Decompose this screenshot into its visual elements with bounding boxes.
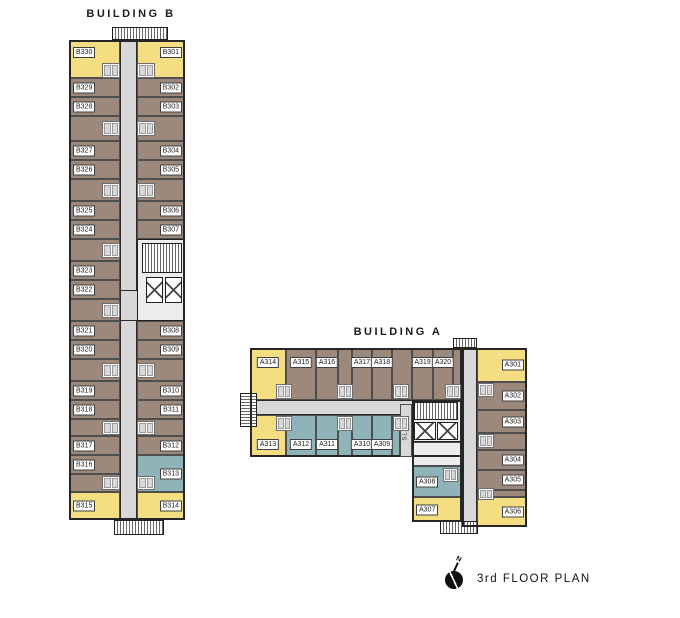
elevator-icon bbox=[414, 422, 436, 440]
unit-A303: A303 bbox=[477, 410, 527, 433]
bathroom-pod bbox=[102, 243, 120, 258]
building-a: A314A315A316A317A318A319A320A313A312A311… bbox=[240, 345, 530, 560]
bathroom-pod bbox=[445, 384, 461, 399]
stair-bump bbox=[240, 393, 257, 427]
bathroom-pod bbox=[137, 363, 155, 378]
unit-B324: B324 bbox=[69, 220, 120, 239]
bathroom-pod bbox=[102, 63, 120, 78]
unit-label-B316: B316 bbox=[73, 459, 95, 470]
bathroom-pod bbox=[393, 416, 409, 431]
unit-label-A317: A317 bbox=[351, 357, 373, 368]
unit-label-B301: B301 bbox=[160, 47, 182, 58]
unit-label-B329: B329 bbox=[73, 82, 95, 93]
elevator-icon bbox=[437, 422, 458, 440]
stair bbox=[142, 243, 182, 273]
bathroom-pod bbox=[393, 384, 409, 399]
unit-A307: A307 bbox=[412, 497, 462, 522]
unit-B317: B317 bbox=[69, 436, 120, 455]
bathroom-pod bbox=[102, 476, 120, 490]
unit-B305: B305 bbox=[137, 160, 185, 179]
plan-legend: N 3rd FLOOR PLAN bbox=[440, 558, 640, 598]
unit-label-B321: B321 bbox=[73, 325, 95, 336]
unit-B306: B306 bbox=[137, 201, 185, 220]
unit-label-A303: A303 bbox=[502, 416, 524, 427]
unit-label-A310: A310 bbox=[351, 439, 373, 450]
unit-A306: A306 bbox=[477, 497, 527, 527]
corridor bbox=[462, 348, 477, 530]
unit-label-A309: A309 bbox=[371, 439, 393, 450]
unit-B308: B308 bbox=[137, 321, 185, 340]
unit-label-A312: A312 bbox=[290, 439, 312, 450]
building-title: BUILDING B bbox=[86, 8, 175, 20]
unit-label-A316: A316 bbox=[316, 357, 338, 368]
unit-label-A314: A314 bbox=[257, 357, 279, 368]
unit-A309: A309 bbox=[372, 415, 392, 457]
unit-label-B319: B319 bbox=[73, 385, 95, 396]
unit-A317: A317 bbox=[352, 348, 372, 400]
unit-B325: B325 bbox=[69, 201, 120, 220]
unit-label-B308: B308 bbox=[160, 325, 182, 336]
bathroom-pod bbox=[337, 384, 353, 399]
plan-title: 3rd FLOOR PLAN bbox=[477, 573, 591, 585]
unit-B311: B311 bbox=[137, 400, 185, 419]
unit-label-B330: B330 bbox=[73, 47, 95, 58]
unit-B310: B310 bbox=[137, 381, 185, 400]
unit-B302: B302 bbox=[137, 78, 185, 97]
north-arrow-icon: N bbox=[440, 558, 474, 594]
unit-label-B317: B317 bbox=[73, 440, 95, 451]
unit-label-A306: A306 bbox=[502, 507, 524, 518]
unit-label-A315: A315 bbox=[290, 357, 312, 368]
unit-label-B318: B318 bbox=[73, 404, 95, 415]
bathroom-pod bbox=[137, 63, 155, 78]
service-area bbox=[412, 442, 462, 466]
building-title: BUILDING A bbox=[354, 326, 443, 338]
unit-label-B312: B312 bbox=[160, 440, 182, 451]
unit-B309: B309 bbox=[137, 340, 185, 359]
unit-label-B302: B302 bbox=[160, 82, 182, 93]
unit-A304: A304 bbox=[477, 450, 527, 470]
unit-label-B309: B309 bbox=[160, 344, 182, 355]
unit-A310: A310 bbox=[352, 415, 372, 457]
unit-B312: B312 bbox=[137, 436, 185, 455]
elevator-icon bbox=[146, 277, 163, 303]
bathroom-pod bbox=[337, 416, 353, 431]
unit-label-B327: B327 bbox=[73, 145, 95, 156]
bathroom-pod bbox=[478, 383, 494, 397]
bathroom-pod bbox=[478, 488, 494, 500]
unit-label-B328: B328 bbox=[73, 101, 95, 112]
unit-A301: A301 bbox=[477, 348, 527, 382]
unit-A311: A311 bbox=[316, 415, 338, 457]
bathroom-pod bbox=[102, 183, 120, 198]
elevator-icon bbox=[165, 277, 182, 303]
unit-label-B326: B326 bbox=[73, 164, 95, 175]
unit-label-B311: B311 bbox=[160, 404, 182, 415]
bathroom-pod bbox=[478, 434, 494, 448]
unit-label-B313: B313 bbox=[160, 468, 182, 479]
unit-B307: B307 bbox=[137, 220, 185, 239]
unit-A305: A305 bbox=[477, 470, 527, 490]
building-b: B330B329B328B327B326B325B324B323B322B321… bbox=[69, 40, 185, 520]
unit-B327: B327 bbox=[69, 141, 120, 160]
bathroom-pod bbox=[137, 476, 155, 490]
unit-label-B306: B306 bbox=[160, 205, 182, 216]
unit-B322: B322 bbox=[69, 280, 120, 299]
unit-label-B305: B305 bbox=[160, 164, 182, 175]
unit-label-A318: A318 bbox=[371, 357, 393, 368]
unit-label-A311: A311 bbox=[316, 439, 338, 450]
bathroom-pod bbox=[276, 416, 292, 431]
bathroom-pod bbox=[102, 421, 120, 435]
stair-bump bbox=[112, 27, 168, 40]
bathroom-pod bbox=[137, 421, 155, 435]
unit-label-A302: A302 bbox=[502, 391, 524, 402]
unit-B318: B318 bbox=[69, 400, 120, 419]
stair-bump bbox=[440, 521, 478, 534]
unit-label-A305: A305 bbox=[502, 475, 524, 486]
bathroom-pod bbox=[102, 303, 120, 318]
unit-label-A307: A307 bbox=[416, 504, 438, 515]
unit-B316: B316 bbox=[69, 455, 120, 474]
unit-B323: B323 bbox=[69, 261, 120, 280]
unit-label-B314: B314 bbox=[160, 501, 182, 512]
bathroom-pod bbox=[102, 121, 120, 136]
unit-label-A319: A319 bbox=[411, 357, 433, 368]
bathroom-pod bbox=[137, 121, 155, 136]
compass-disc bbox=[445, 571, 463, 589]
unit-label-B307: B307 bbox=[160, 224, 182, 235]
unit-label-B325: B325 bbox=[73, 205, 95, 216]
unit-A319: A319 bbox=[412, 348, 433, 400]
unit-B328: B328 bbox=[69, 97, 120, 116]
unit-B303: B303 bbox=[137, 97, 185, 116]
unit-B319: B319 bbox=[69, 381, 120, 400]
stair-bump bbox=[114, 520, 164, 535]
unit-label-B324: B324 bbox=[73, 224, 95, 235]
unit-B329: B329 bbox=[69, 78, 120, 97]
unit-label-B310: B310 bbox=[160, 385, 182, 396]
stair-bump bbox=[453, 338, 477, 348]
unit-label-A320: A320 bbox=[432, 357, 454, 368]
bathroom-pod bbox=[102, 363, 120, 378]
bathroom-pod bbox=[276, 384, 292, 399]
unit-B315: B315 bbox=[69, 492, 120, 520]
unit-B326: B326 bbox=[69, 160, 120, 179]
unit-label-A313: A313 bbox=[257, 439, 279, 450]
unit-label-B322: B322 bbox=[73, 284, 95, 295]
unit-A316: A316 bbox=[316, 348, 338, 400]
unit-label-B315: B315 bbox=[73, 501, 95, 512]
unit-B321: B321 bbox=[69, 321, 120, 340]
stair bbox=[414, 402, 458, 420]
bathroom-pod bbox=[137, 183, 155, 198]
unit-label-B303: B303 bbox=[160, 101, 182, 112]
floor-plan-canvas: N 3rd FLOOR PLAN B330B329B328B327B326B32… bbox=[0, 0, 680, 618]
unit-label-B323: B323 bbox=[73, 265, 95, 276]
unit-label-A308: A308 bbox=[416, 476, 438, 487]
unit-B304: B304 bbox=[137, 141, 185, 160]
unit-label-B320: B320 bbox=[73, 344, 95, 355]
bathroom-pod bbox=[443, 468, 458, 482]
unit-A318: A318 bbox=[372, 348, 392, 400]
unit-label-B304: B304 bbox=[160, 145, 182, 156]
unit-label-A301: A301 bbox=[502, 360, 524, 371]
unit-B320: B320 bbox=[69, 340, 120, 359]
unit-B314: B314 bbox=[137, 492, 185, 520]
unit-label-A304: A304 bbox=[502, 455, 524, 466]
corridor bbox=[120, 40, 137, 520]
